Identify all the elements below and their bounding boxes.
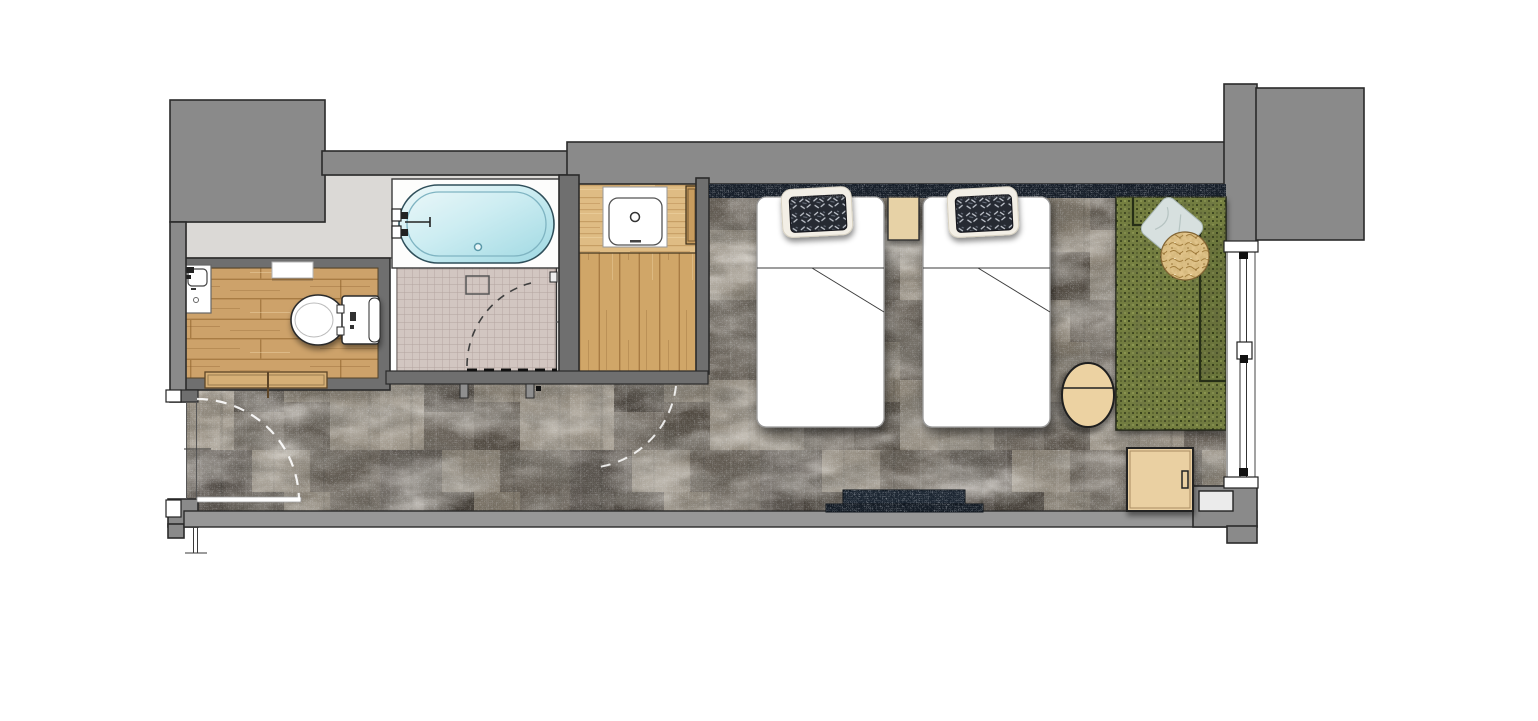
wall-band-bathroom — [322, 151, 572, 175]
floor-step-unit — [1199, 491, 1233, 511]
door-post-1 — [460, 384, 468, 398]
corner-hand-basin — [185, 265, 211, 313]
wall-right-pillar — [1224, 84, 1257, 246]
overflow-drain — [475, 244, 482, 251]
wall-bath-vanity-partition — [559, 175, 579, 374]
wall-left — [170, 222, 186, 402]
floor-plan-drawing — [0, 0, 1538, 721]
sofa-daybed — [1116, 194, 1226, 430]
wall-bottom-left-foot — [168, 524, 184, 538]
round-gold-cushion — [1161, 232, 1209, 280]
window-frame-bottom — [1224, 477, 1258, 488]
toilet-sliding-door — [205, 372, 327, 388]
door-stop-dot — [536, 386, 541, 391]
vanity-floor — [577, 253, 696, 372]
shower-door-hinge — [550, 272, 557, 282]
luggage-cabinet — [1127, 448, 1193, 511]
wall-top-right-block — [1256, 88, 1364, 240]
basin-faucet — [631, 213, 640, 222]
wall-band-bedroom — [567, 142, 1226, 184]
washbasin — [603, 187, 667, 247]
entry-outer-jamb-bottom — [166, 500, 181, 517]
entry-door-leaf — [197, 497, 301, 502]
wall-bottom-band — [184, 511, 1257, 527]
door-post-2 — [526, 384, 534, 398]
toilet — [291, 295, 380, 345]
wall-bottom-right-foot — [1227, 526, 1257, 543]
entry-outer-jamb-top — [166, 390, 181, 402]
window-wall — [1224, 241, 1258, 488]
wall-vanity-bedroom — [696, 178, 709, 374]
vanity-room — [577, 181, 697, 372]
window-frame-top — [1224, 241, 1258, 252]
wall-shelf — [272, 262, 313, 278]
entry-door-jamb-top — [181, 390, 198, 402]
nightstand — [888, 197, 919, 240]
wall-top-left-block — [170, 100, 325, 222]
floor-plan-page — [0, 0, 1538, 721]
toilet-room — [176, 258, 390, 398]
wall-under-bathroom — [386, 371, 708, 384]
bathtub — [392, 179, 561, 268]
